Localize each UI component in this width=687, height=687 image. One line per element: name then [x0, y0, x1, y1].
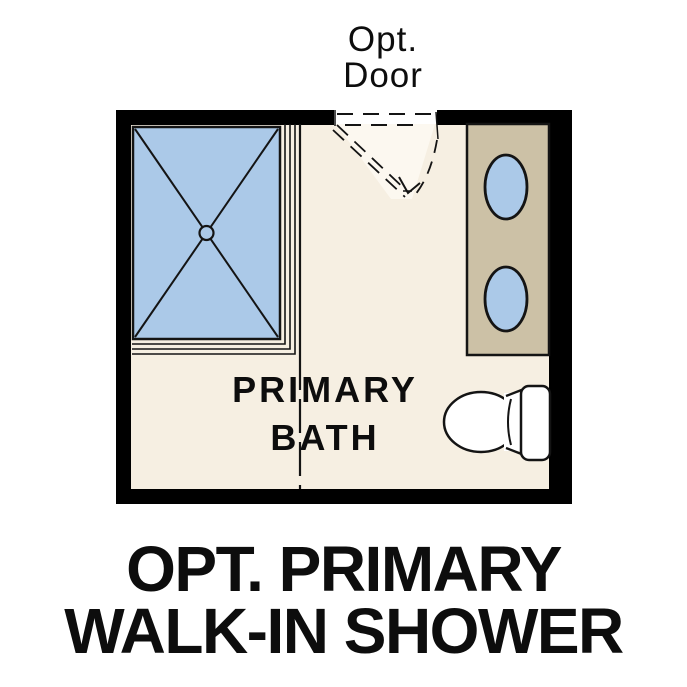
- room-label: PRIMARY BATH: [195, 366, 455, 462]
- shower-drain: [200, 226, 214, 240]
- toilet-tank: [521, 386, 550, 460]
- wall-left: [116, 110, 131, 504]
- wall-top-left: [116, 110, 334, 125]
- wall-bottom: [116, 489, 572, 504]
- toilet-seat-mask: [504, 393, 522, 451]
- wall-right: [549, 110, 572, 504]
- room-label-line2: BATH: [195, 414, 455, 462]
- floorplan-page: Opt. Door PRIMARY BATH OPT. PRIMARY WALK…: [0, 0, 687, 687]
- room-label-line1: PRIMARY: [195, 366, 455, 414]
- shower-icon: [132, 124, 300, 356]
- opt-door-label: Opt. Door: [293, 22, 473, 94]
- sink-icon-top: [485, 155, 527, 219]
- opt-door-label-line2: Door: [293, 58, 473, 94]
- opt-door-label-line1: Opt.: [293, 22, 473, 58]
- plan-title: OPT. PRIMARY WALK-IN SHOWER: [0, 538, 687, 662]
- plan-title-line1: OPT. PRIMARY: [0, 538, 687, 600]
- sink-icon-bottom: [485, 267, 527, 331]
- vanity-icon: [467, 124, 549, 355]
- plan-title-line2: WALK-IN SHOWER: [0, 600, 687, 662]
